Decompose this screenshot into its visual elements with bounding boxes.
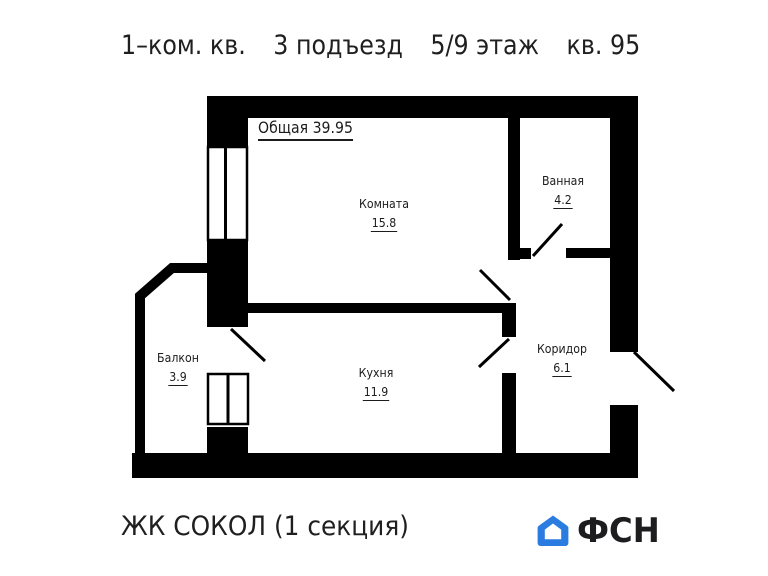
room-area: 6.1 xyxy=(552,360,571,377)
wall-left-pier-bottom xyxy=(207,427,248,453)
room-name: Ванная xyxy=(510,171,616,190)
floor-plan-page: 1–ком. кв. 3 подъезд 5/9 этаж кв. 95 xyxy=(0,0,768,576)
logo-text: ФСН xyxy=(577,512,660,550)
entrance-door-leaf xyxy=(634,352,674,391)
room-area: 4.2 xyxy=(553,192,572,209)
room-label-balkon: Балкон 3.9 xyxy=(125,348,231,386)
wall-right-upper xyxy=(610,118,638,352)
room-label-koridor: Коридор 6.1 xyxy=(509,339,615,377)
room-area: 3.9 xyxy=(168,369,187,386)
total-area-text: Общая 39.95 xyxy=(258,119,353,141)
wall-kitchen-corridor xyxy=(502,373,516,453)
room-label-komnata: Комната 15.8 xyxy=(322,194,445,232)
wall-top xyxy=(207,96,638,118)
wall-corridor-post xyxy=(502,303,516,337)
wall-bathroom-doorpost-left xyxy=(508,248,531,259)
total-area-label: Общая 39.95 xyxy=(258,119,353,141)
floor-plan-drawing xyxy=(0,0,768,576)
room-area: 11.9 xyxy=(363,384,389,401)
fsn-logo: ФСН xyxy=(534,512,664,550)
house-icon xyxy=(534,512,572,550)
wall-room-kitchen-divider xyxy=(245,303,516,313)
room-name: Комната xyxy=(322,194,445,213)
kitchen-door-leaf xyxy=(479,339,509,367)
room-door-leaf xyxy=(480,270,510,300)
wall-left-pier-top xyxy=(207,118,248,147)
room-label-kuhnya: Кухня 11.9 xyxy=(314,363,437,401)
room-area: 15.8 xyxy=(371,215,397,232)
room-label-vannaya: Ванная 4.2 xyxy=(510,171,616,209)
room-name: Коридор xyxy=(509,339,615,358)
wall-bathroom-bottom xyxy=(566,248,613,258)
room-name: Кухня xyxy=(314,363,437,382)
complex-name: ЖК СОКОЛ (1 секция) xyxy=(121,511,409,542)
balcony-door-leaf xyxy=(231,329,265,361)
room-name: Балкон xyxy=(125,348,231,367)
wall-bottom xyxy=(132,453,638,478)
bathroom-door-leaf xyxy=(533,224,562,256)
room-window xyxy=(208,147,247,240)
wall-left-pier-middle xyxy=(207,240,248,327)
